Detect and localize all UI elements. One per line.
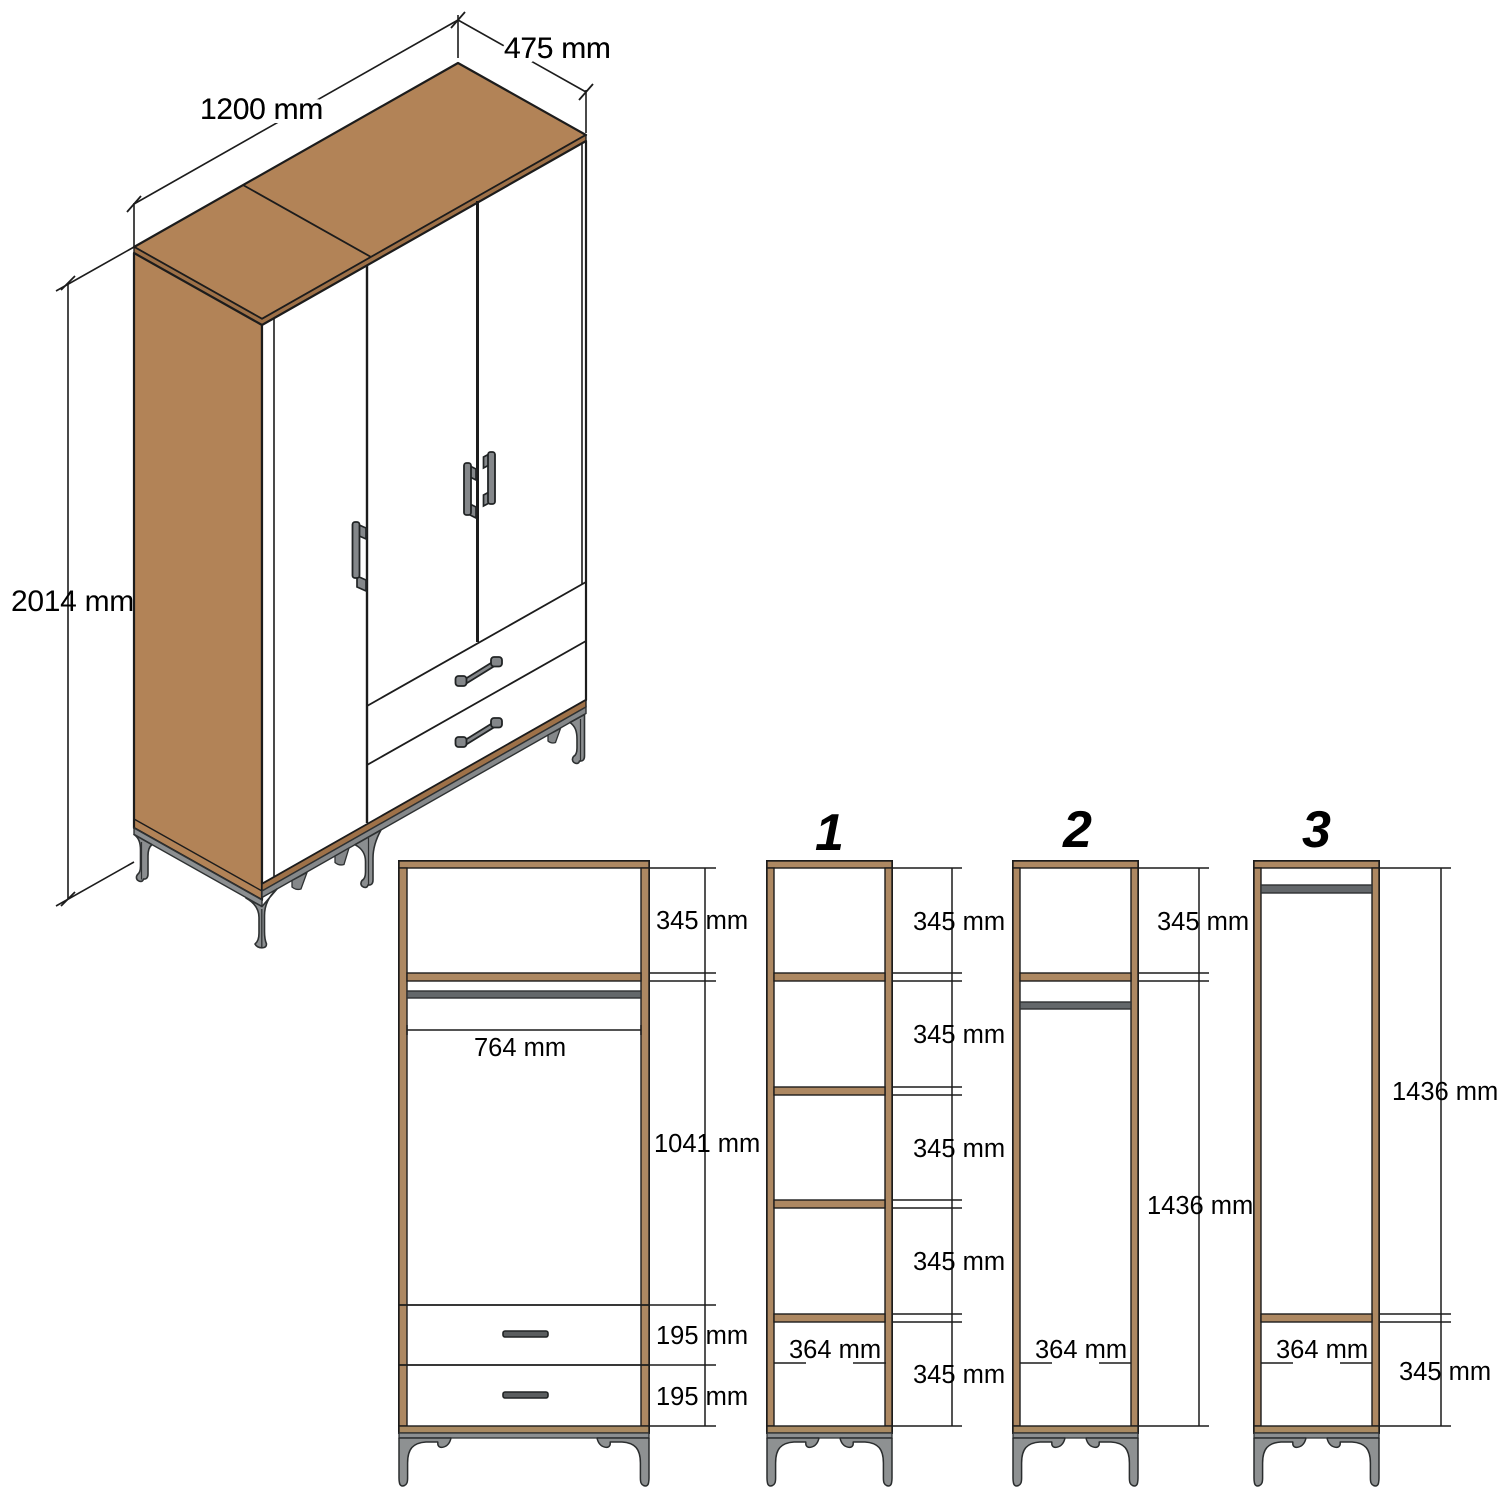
svg-text:364 mm: 364 mm (1276, 1336, 1368, 1364)
svg-text:345 mm: 345 mm (1399, 1358, 1491, 1386)
svg-text:345 mm: 345 mm (913, 1021, 1005, 1049)
svg-text:195 mm: 195 mm (656, 1383, 748, 1411)
svg-text:345 mm: 345 mm (913, 1135, 1005, 1163)
svg-text:3: 3 (1302, 801, 1331, 859)
svg-text:345 mm: 345 mm (913, 1248, 1005, 1276)
svg-text:364 mm: 364 mm (789, 1336, 881, 1364)
svg-text:1436 mm: 1436 mm (1147, 1192, 1253, 1220)
svg-text:345 mm: 345 mm (656, 907, 748, 935)
svg-text:2: 2 (1062, 801, 1092, 859)
svg-text:345 mm: 345 mm (913, 1361, 1005, 1389)
svg-text:195 mm: 195 mm (656, 1322, 748, 1350)
svg-text:1041 mm: 1041 mm (654, 1130, 760, 1158)
svg-text:1436 mm: 1436 mm (1392, 1078, 1498, 1106)
svg-text:364 mm: 364 mm (1035, 1336, 1127, 1364)
svg-text:1200 mm: 1200 mm (200, 93, 323, 126)
svg-text:2014 mm: 2014 mm (11, 585, 134, 618)
svg-text:345 mm: 345 mm (1157, 908, 1249, 936)
svg-text:764 mm: 764 mm (474, 1034, 566, 1062)
svg-text:475 mm: 475 mm (504, 32, 611, 65)
svg-text:345 mm: 345 mm (913, 908, 1005, 936)
svg-text:1: 1 (815, 804, 844, 862)
